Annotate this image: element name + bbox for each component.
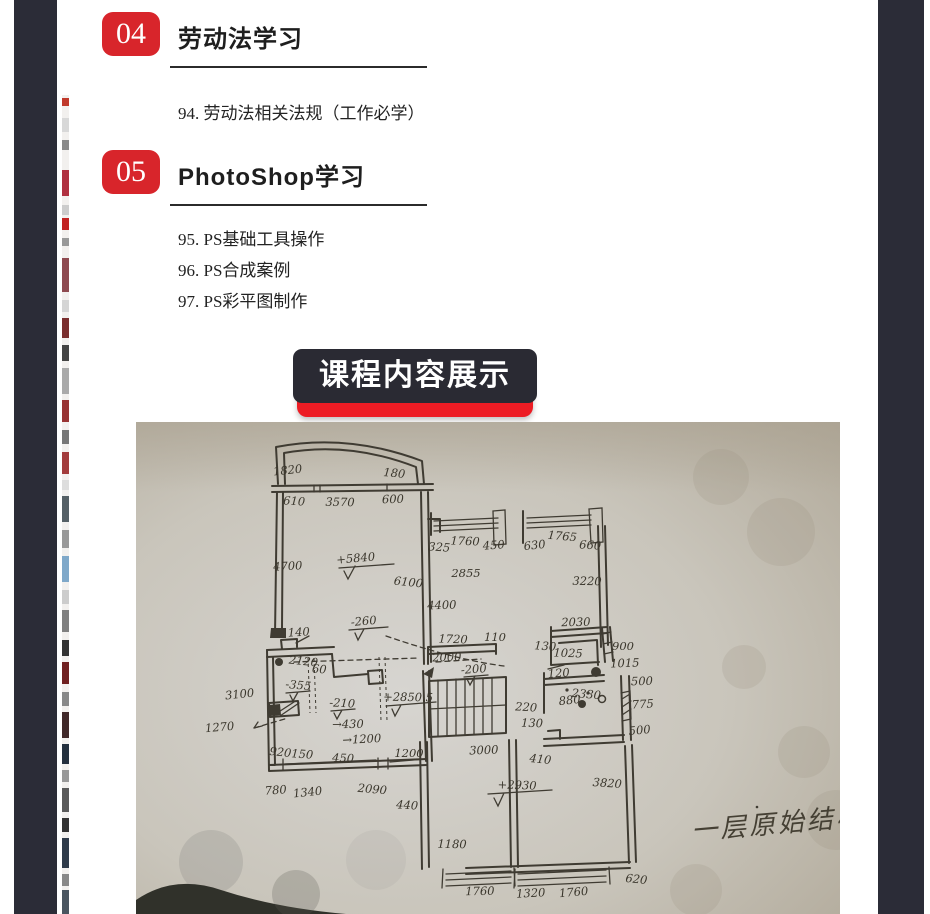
edge-fragment <box>62 530 69 548</box>
title-underline <box>170 204 427 206</box>
edge-fragment <box>62 692 69 706</box>
edge-fragment <box>62 788 69 812</box>
edge-fragment <box>62 118 69 132</box>
edge-fragment <box>62 662 69 684</box>
edge-fragment <box>62 590 69 604</box>
svg-text:-355: -355 <box>285 677 312 693</box>
section-title: 劳动法学习 <box>178 12 470 54</box>
edge-fragment <box>62 300 69 312</box>
svg-text:+2850.5: +2850.5 <box>383 690 433 705</box>
svg-text:1270: 1270 <box>204 719 234 735</box>
svg-text:130: 130 <box>521 716 543 730</box>
svg-text:600: 600 <box>382 492 404 506</box>
edge-fragment <box>62 345 69 361</box>
svg-text:920: 920 <box>269 744 292 760</box>
svg-text:120: 120 <box>547 665 570 680</box>
svg-text:2855: 2855 <box>450 566 480 580</box>
svg-text:450: 450 <box>331 751 354 766</box>
svg-text:1320: 1320 <box>516 885 546 901</box>
title-underline <box>170 66 427 68</box>
svg-text:4700: 4700 <box>272 558 303 574</box>
svg-text:500: 500 <box>631 674 653 688</box>
svg-text:2030: 2030 <box>560 615 591 630</box>
svg-text:-260: -260 <box>350 613 377 629</box>
svg-text:180: 180 <box>383 465 406 481</box>
svg-text:2000: 2000 <box>431 649 462 664</box>
svg-text:2090: 2090 <box>356 781 387 798</box>
edge-fragment <box>62 140 69 150</box>
svg-text:3570: 3570 <box>325 495 355 510</box>
svg-text:440: 440 <box>395 797 419 812</box>
section-title: PhotoShop学习 <box>178 150 470 192</box>
edge-fragment <box>62 318 69 338</box>
svg-text:660: 660 <box>579 537 602 552</box>
edge-fragment <box>62 712 69 738</box>
edge-fragment <box>62 205 69 215</box>
svg-text:1015: 1015 <box>610 655 640 670</box>
svg-text:3220: 3220 <box>572 574 602 589</box>
content-banner: 课程内容展示 <box>293 349 537 417</box>
edge-fragment <box>62 744 69 764</box>
floorplan-photo: 182018061035706004700+584061003251760285… <box>136 422 840 914</box>
svg-text:900: 900 <box>612 639 634 653</box>
edge-fragment <box>62 640 69 656</box>
svg-text:1200: 1200 <box>394 746 423 760</box>
paper-stain <box>346 830 406 890</box>
svg-text:1765: 1765 <box>547 528 577 544</box>
svg-text:610: 610 <box>283 493 306 508</box>
floorplan-sketch: 182018061035706004700+584061003251760285… <box>136 422 840 914</box>
edge-fragment <box>62 98 69 106</box>
svg-text:220: 220 <box>514 699 538 714</box>
lesson-item: 97. PS彩平图制作 <box>178 286 470 317</box>
edge-fragment <box>62 218 69 230</box>
svg-text:1025: 1025 <box>553 645 583 660</box>
svg-text:4400: 4400 <box>426 597 457 612</box>
svg-text:110: 110 <box>484 630 506 644</box>
svg-text:780: 780 <box>264 782 287 797</box>
section-number-badge: 04 <box>102 12 160 56</box>
svg-text:2330: 2330 <box>570 686 601 703</box>
svg-text:1760: 1760 <box>558 884 588 900</box>
svg-text:150: 150 <box>291 746 314 761</box>
svg-text:410: 410 <box>528 751 552 767</box>
lesson-list: 94. 劳动法相关法规（工作必学） <box>170 98 470 129</box>
svg-text:500: 500 <box>628 722 651 738</box>
svg-text:→430: →430 <box>332 717 364 732</box>
edge-fragment <box>62 170 69 196</box>
svg-text:60: 60 <box>311 662 327 677</box>
lesson-list: 95. PS基础工具操作 96. PS合成案例 97. PS彩平图制作 <box>170 224 470 317</box>
left-dark-frame <box>14 0 57 914</box>
svg-text:775: 775 <box>631 696 654 711</box>
svg-text:+2930: +2930 <box>497 777 536 792</box>
lesson-item: 95. PS基础工具操作 <box>178 224 470 255</box>
edge-fragment <box>62 838 69 868</box>
edge-fragment <box>62 452 69 474</box>
page-canvas: 04 劳动法学习 94. 劳动法相关法规（工作必学） 05 PhotoShop学… <box>0 0 930 914</box>
section-number-badge: 05 <box>102 150 160 194</box>
edge-fragment <box>62 368 69 394</box>
edge-fragment <box>62 556 69 582</box>
svg-text:3820: 3820 <box>592 775 622 791</box>
edge-fragment <box>62 610 69 632</box>
svg-text:→1200: →1200 <box>342 731 382 747</box>
svg-text:450: 450 <box>481 537 505 553</box>
edge-fragment <box>62 258 69 292</box>
svg-text:3000: 3000 <box>469 742 499 757</box>
svg-text:1760: 1760 <box>465 884 495 899</box>
svg-text:140: 140 <box>287 624 310 639</box>
edge-fragment <box>62 480 69 490</box>
edge-fragment <box>62 238 69 246</box>
svg-text:1760: 1760 <box>450 533 480 548</box>
edge-fragment <box>62 874 69 886</box>
svg-text:325: 325 <box>428 539 451 554</box>
edge-fragment <box>62 818 69 832</box>
edge-fragment <box>62 496 69 522</box>
svg-text:620: 620 <box>625 871 648 887</box>
svg-text:630: 630 <box>523 537 546 553</box>
edge-fragment <box>62 430 69 444</box>
edge-fragment <box>62 400 69 422</box>
svg-text:1720: 1720 <box>438 631 468 646</box>
edge-fragment <box>62 890 69 914</box>
lesson-item: 94. 劳动法相关法规（工作必学） <box>178 98 470 129</box>
lesson-item: 96. PS合成案例 <box>178 255 470 286</box>
banner-label: 课程内容展示 <box>293 349 537 403</box>
edge-thumbnail-strip <box>62 95 69 914</box>
svg-text:-210: -210 <box>329 695 356 710</box>
right-dark-frame <box>878 0 924 914</box>
edge-fragment <box>62 770 69 782</box>
svg-text:-200: -200 <box>460 661 487 677</box>
svg-text:1180: 1180 <box>437 837 467 852</box>
